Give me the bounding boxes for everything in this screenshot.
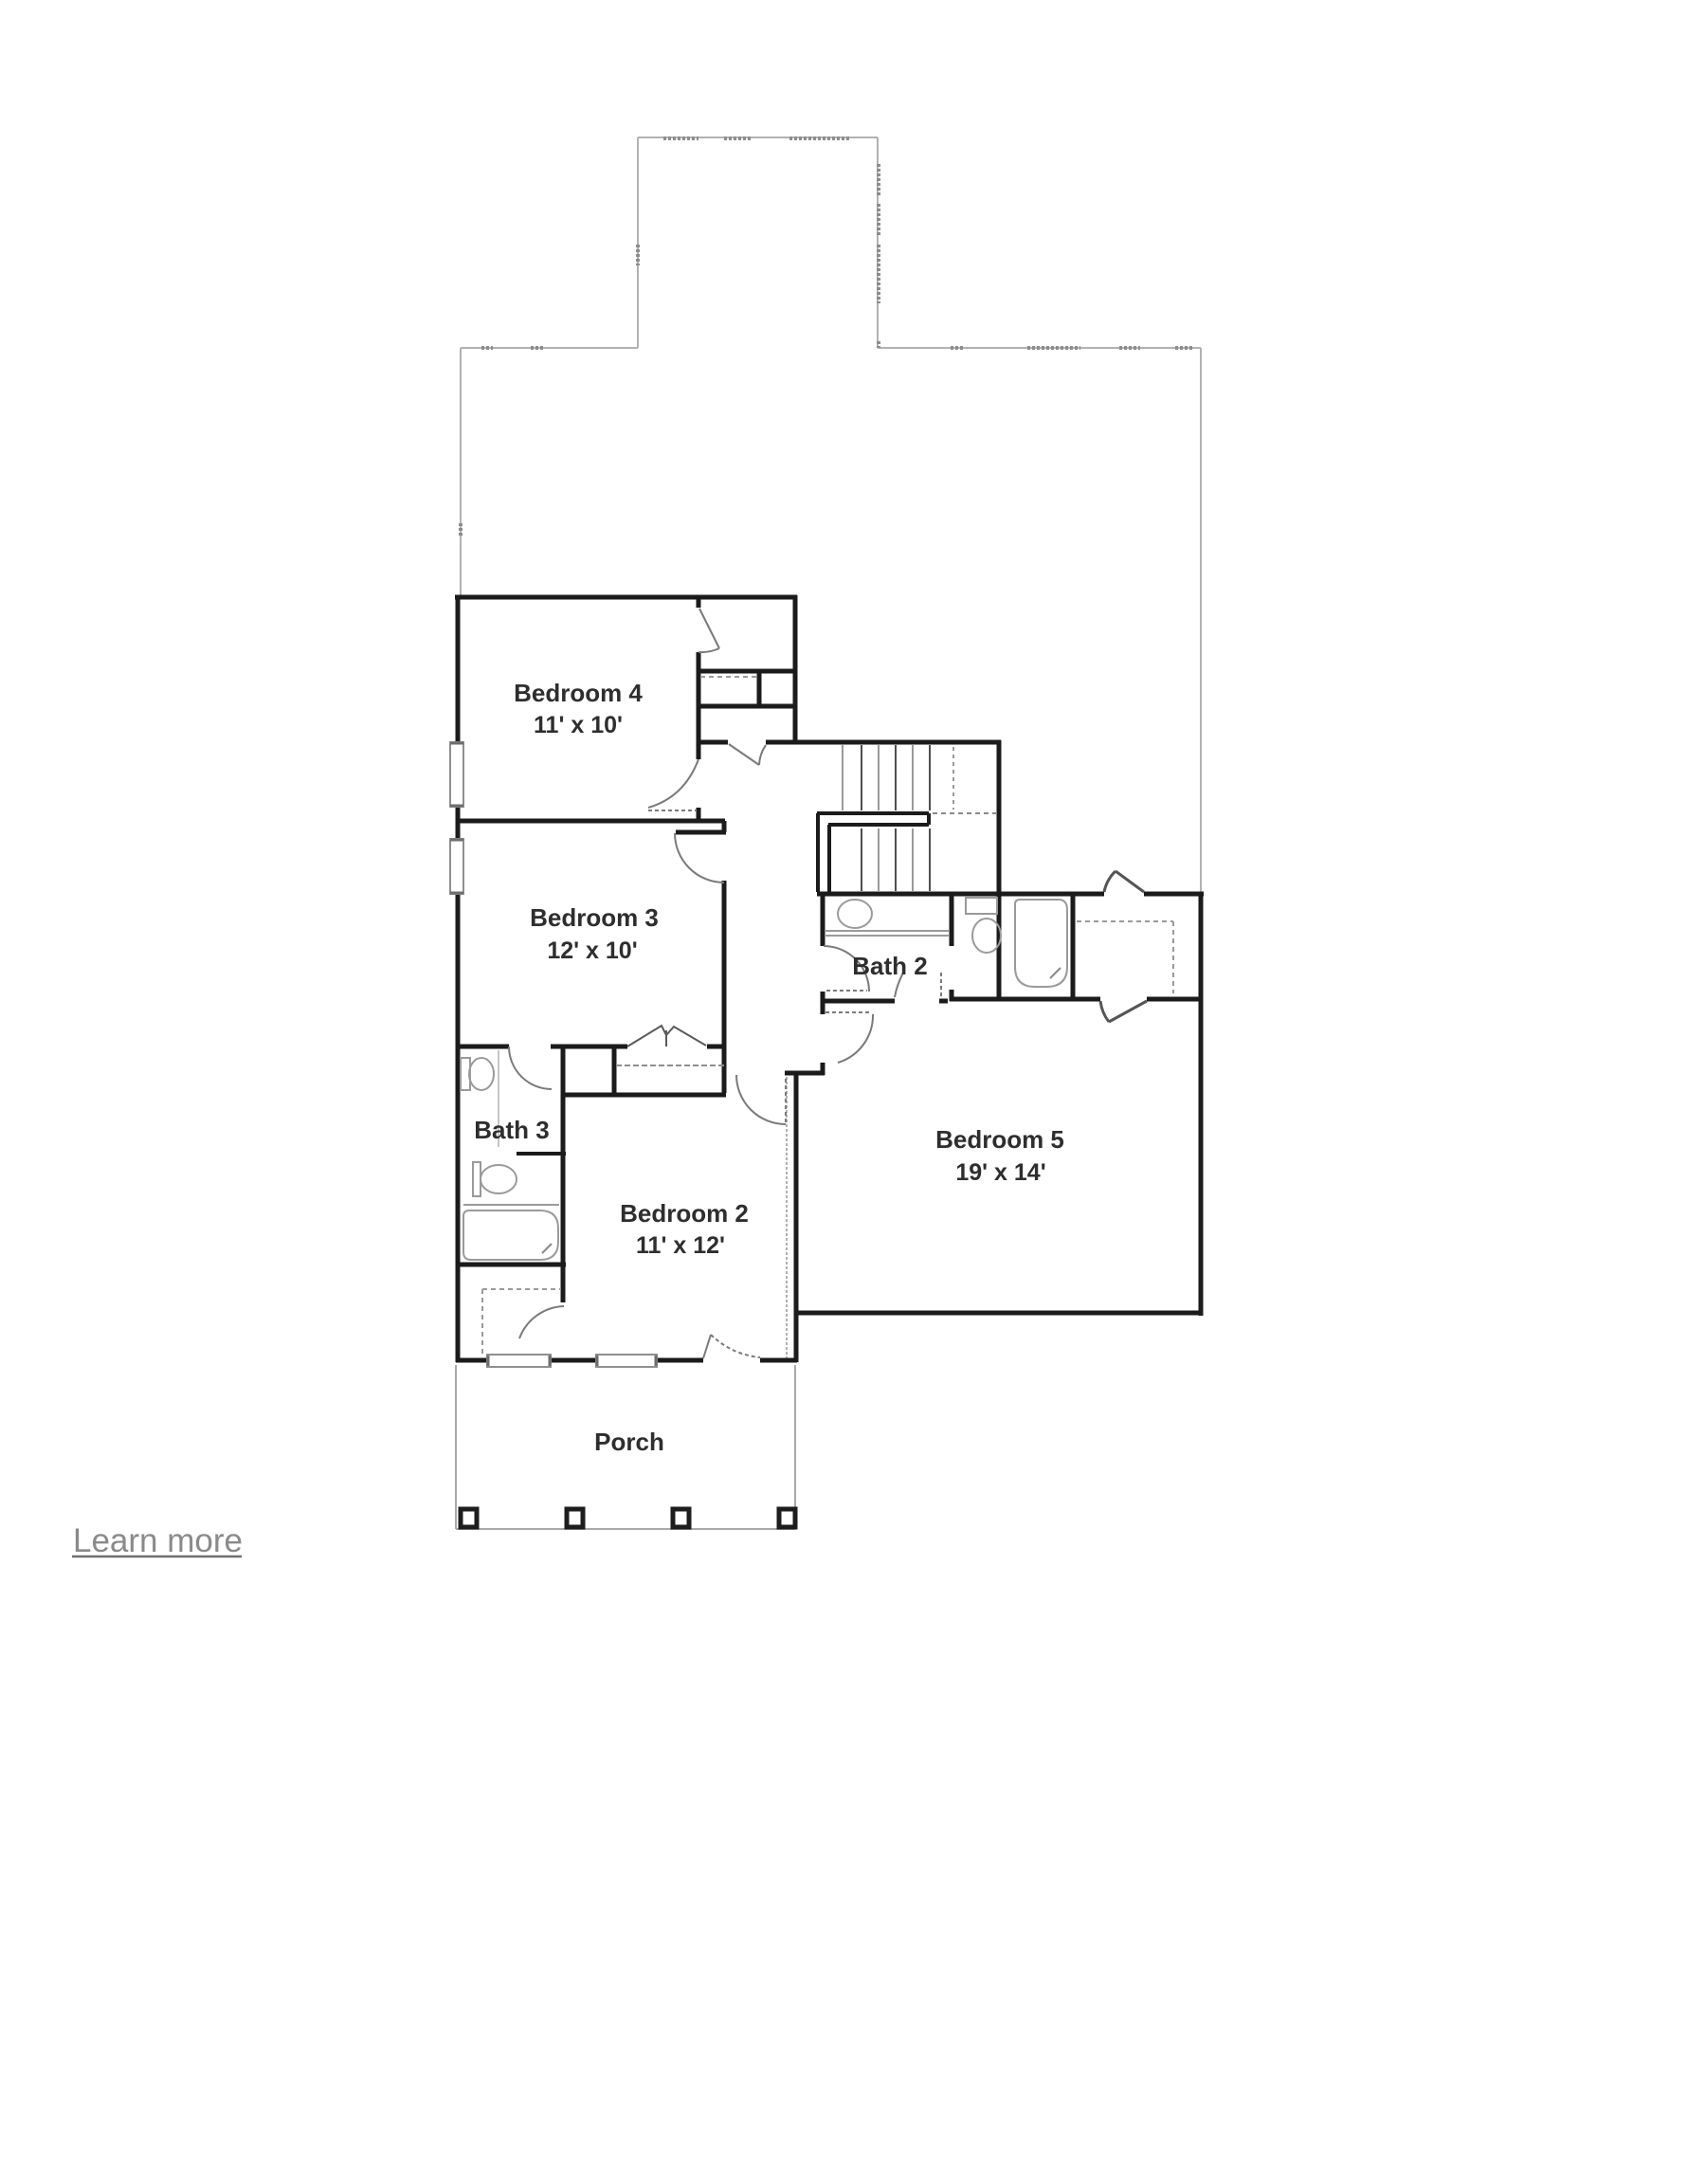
svg-text:Learn more: Learn more [73,1522,243,1559]
svg-text:11' x 12': 11' x 12' [636,1232,725,1259]
svg-text:11' x 10': 11' x 10' [534,712,623,738]
svg-text:Bath 2: Bath 2 [852,952,927,980]
svg-text:Bedroom 3: Bedroom 3 [530,903,659,932]
svg-text:Bedroom 4: Bedroom 4 [514,679,643,707]
svg-text:12' x 10': 12' x 10' [547,937,637,964]
svg-text:Bedroom 5: Bedroom 5 [935,1125,1064,1154]
svg-text:19' x 14': 19' x 14' [955,1159,1045,1186]
svg-text:Bath 3: Bath 3 [474,1116,549,1144]
svg-text:Porch: Porch [594,1428,664,1456]
svg-text:Bedroom 2: Bedroom 2 [620,1199,749,1228]
